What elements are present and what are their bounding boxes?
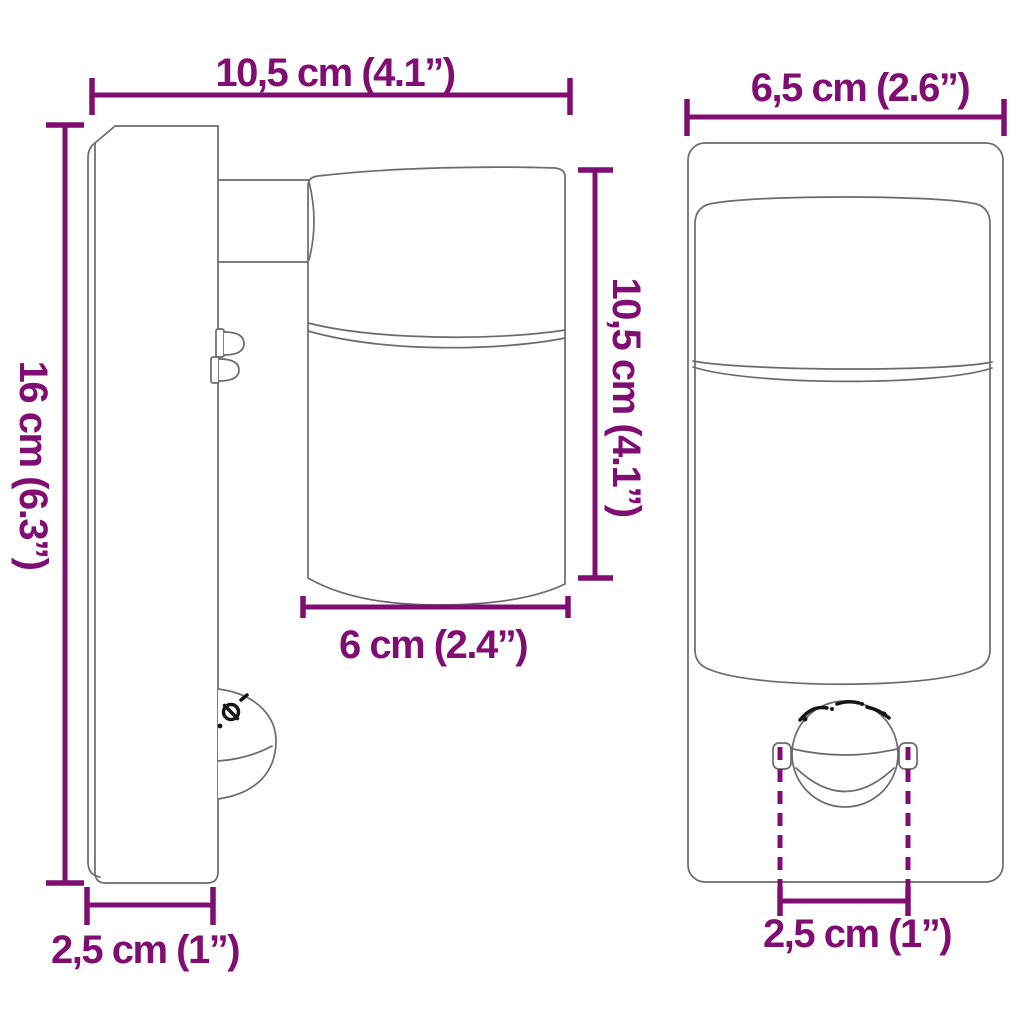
adjustment-knobs <box>211 329 244 383</box>
mounting-arm <box>218 180 310 262</box>
dim-front-width: 6,5 cm (2.6”) <box>687 66 1004 136</box>
dim-front-width-label: 6,5 cm (2.6”) <box>751 66 970 110</box>
knob-upper-dome <box>224 332 244 355</box>
front-lamp-face <box>695 197 990 684</box>
engraving-dot-2 <box>830 707 834 711</box>
dim-sensor-width-label: 2,5 cm (1”) <box>763 912 951 956</box>
side-view <box>88 126 565 883</box>
diagram-canvas: 10,5 cm (4.1”) 16 cm (6.3”) 10,5 cm (4.1… <box>0 0 1024 1024</box>
dim-head-diameter-label: 6 cm (2.4”) <box>339 623 527 667</box>
lamp-head-side <box>308 167 565 605</box>
engraving-dot-3 <box>860 702 864 706</box>
dim-side-total-height-label: 16 cm (6.3”) <box>11 361 55 570</box>
front-view <box>688 143 1003 882</box>
dim-side-total-width: 10,5 cm (4.1”) <box>92 51 570 115</box>
engraving-dot-1 <box>803 717 808 722</box>
dim-plate-depth-label: 2,5 cm (1”) <box>51 928 239 972</box>
engraving-dot-4 <box>882 712 887 717</box>
dimension-diagram: 10,5 cm (4.1”) 16 cm (6.3”) 10,5 cm (4.1… <box>0 0 1024 1024</box>
knob-lower-dome <box>219 359 239 381</box>
screw-dot <box>218 724 223 729</box>
dim-side-total-height: 16 cm (6.3”) <box>11 125 84 883</box>
dim-side-total-width-label: 10,5 cm (4.1”) <box>215 51 454 95</box>
side-plate-body <box>95 126 218 883</box>
head-outline <box>308 167 565 605</box>
knob-lower-base <box>211 357 219 383</box>
dim-plate-depth: 2,5 cm (1”) <box>51 887 239 972</box>
dim-head-diameter: 6 cm (2.4”) <box>303 596 568 667</box>
knob-upper-base <box>216 329 224 357</box>
dim-head-height: 10,5 cm (4.1”) <box>578 170 648 578</box>
dim-head-height-label: 10,5 cm (4.1”) <box>604 277 648 516</box>
motion-sensor-side <box>218 689 276 799</box>
